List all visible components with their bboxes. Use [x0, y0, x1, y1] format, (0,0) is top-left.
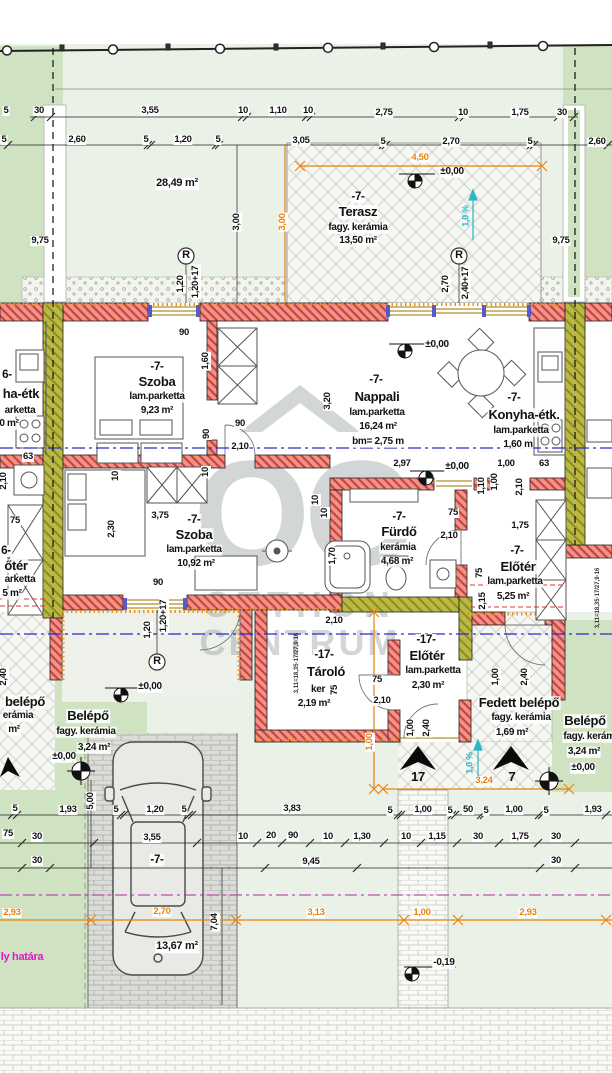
- dim-label: 2,10: [515, 477, 525, 496]
- lvl-label: ±0,00: [51, 752, 76, 763]
- unit-label: 6-: [1, 369, 13, 381]
- dim-label: 2,70: [441, 137, 460, 147]
- dim-label: 1,00: [504, 805, 523, 815]
- dim-label: 30: [31, 832, 43, 842]
- sub-label: 4,68 m²: [380, 557, 414, 568]
- dim-label: 90: [202, 428, 212, 440]
- dim-label: 75: [371, 675, 383, 685]
- dim-label: 1,15: [427, 832, 446, 842]
- dim-label: 5: [1, 135, 8, 145]
- dim-label: 1,00: [365, 732, 375, 751]
- dim-label: 1,20: [145, 805, 164, 815]
- sub-label: arketta: [4, 575, 37, 586]
- dim-label: 10: [201, 466, 211, 478]
- dim-label: 3,13: [306, 908, 325, 918]
- area-label: 13,67 m²: [155, 941, 199, 953]
- dim-label: 1,30: [352, 832, 371, 842]
- dim-label: 75: [9, 516, 21, 526]
- dim-label: 3,55: [140, 106, 159, 116]
- dim-label: 9,75: [30, 236, 49, 246]
- dim-label: 10: [457, 108, 469, 118]
- unit-label: -7-: [149, 854, 164, 866]
- dim-label: 1,20: [173, 135, 192, 145]
- arrw-label: 17: [410, 770, 426, 784]
- sub-label: lam.parketta: [128, 392, 185, 403]
- sub-label: 3,24 m²: [567, 747, 601, 758]
- sub-label: 2,30 m²: [411, 681, 445, 692]
- sub-label: lam.parketta: [486, 577, 543, 588]
- sub-label: 3,24 m²: [77, 743, 111, 754]
- mag-label: ly határa: [0, 952, 44, 964]
- dim-label: 75: [2, 829, 14, 839]
- lvl-label: ±0,00: [439, 167, 464, 178]
- room-label: Terasz: [338, 205, 378, 219]
- dim-label: 50: [462, 805, 474, 815]
- dim-label: 1,93: [58, 805, 77, 815]
- room-label: Előtér: [408, 649, 445, 663]
- dim-label: 10: [111, 470, 121, 482]
- room-label: ha-étk: [2, 387, 41, 401]
- dim-label: 2,93: [518, 908, 537, 918]
- dim-label: 2,40: [520, 667, 530, 686]
- dim-label: 5,00: [86, 791, 96, 810]
- dim-label: 2,10: [439, 531, 458, 541]
- lvl-label: ±0,00: [570, 763, 595, 774]
- dim-label: 5: [3, 106, 10, 116]
- sub-label: 10,92 m²: [176, 559, 216, 570]
- dim-label: 5: [215, 135, 222, 145]
- dim-label: 1,00: [496, 459, 515, 469]
- sub-label: 16,24 m²: [358, 422, 398, 433]
- dim-label: 3,75: [150, 511, 169, 521]
- unit-label: -7-: [368, 374, 383, 386]
- room-label: Tároló: [306, 665, 346, 679]
- dim-label: 2,40: [422, 718, 432, 737]
- dim-label: 1,10: [268, 106, 287, 116]
- lvl-label: -0,19: [432, 958, 455, 969]
- dim-label: 2,75: [374, 108, 393, 118]
- dim-label: 3,83: [282, 804, 301, 814]
- dim-label: 2,10: [230, 442, 249, 452]
- sub-label: 5,25 m²: [496, 592, 530, 603]
- room-label: Szoba: [138, 375, 177, 389]
- dim-label: 2,93: [2, 908, 21, 918]
- dim-label: 2,10: [372, 696, 391, 706]
- dim-label: 2,70: [152, 907, 171, 917]
- sub-label: arketta: [4, 406, 37, 417]
- tiny-label: 3,11=18,35·17/27,9·16: [595, 567, 601, 630]
- dim-label: 1,00: [490, 472, 500, 491]
- unit-label: -17-: [415, 634, 436, 646]
- dim-label: 1,20+17: [191, 265, 201, 300]
- dim-label: 1,75: [510, 521, 529, 531]
- dim-label: 1,00: [412, 908, 431, 918]
- dim-label: 3,20: [323, 391, 333, 410]
- sub-label: 0 m²: [0, 419, 20, 430]
- room-label: Fürdő: [380, 525, 417, 539]
- dim-label: 2,40+17: [461, 266, 471, 301]
- dim-label: 4,50: [410, 153, 429, 163]
- unit-label: -7-: [350, 191, 365, 203]
- room-label: Fedett belépő: [478, 696, 561, 710]
- sub-label: fagy. kerámia: [490, 713, 551, 724]
- dim-label: 30: [472, 832, 484, 842]
- room-label: Előtér: [499, 560, 536, 574]
- sub-label: 5 m²: [1, 589, 22, 600]
- dim-label: 1,93: [583, 805, 602, 815]
- dim-label: 10: [302, 106, 314, 116]
- dim-label: 5: [483, 806, 490, 816]
- sub-label: lam.parketta: [492, 426, 549, 437]
- dim-label: 3,05: [291, 136, 310, 146]
- dim-label: 30: [550, 832, 562, 842]
- dim-label: 20: [265, 831, 277, 841]
- dim-label: 5: [143, 135, 150, 145]
- dim-label: 2,40: [0, 667, 9, 686]
- cyan-label: 1,0 %: [465, 751, 474, 775]
- sub-label: 1,69 m²: [495, 728, 529, 739]
- unit-label: 6-: [0, 545, 12, 557]
- dim-label: 75: [330, 684, 340, 696]
- dim-label: 2,15: [478, 591, 488, 610]
- dim-label: 3,00: [232, 212, 242, 231]
- room-label: Belépő: [66, 709, 110, 723]
- room-label: Belépő: [563, 714, 607, 728]
- cyan-label: 1,0 %: [461, 204, 470, 228]
- sub-label: bm= 2,75 m: [351, 437, 405, 448]
- dim-label: 30: [556, 108, 568, 118]
- unit-label: -7-: [186, 514, 201, 526]
- dim-label: 5: [543, 806, 550, 816]
- dim-label: 5: [387, 806, 394, 816]
- dim-label: 1,00: [413, 805, 432, 815]
- dim-label: 63: [538, 459, 550, 469]
- dim-label: 10: [400, 832, 412, 842]
- dim-label: 1,20+17: [159, 599, 169, 634]
- sub-label: fagy. kerámia: [327, 223, 388, 234]
- dim-label: 10: [237, 106, 249, 116]
- unit-label: -17-: [313, 649, 334, 661]
- dim-label: 5: [527, 137, 534, 147]
- sub-label: 2,19 m²: [297, 699, 331, 710]
- unit-label: -7-: [391, 511, 406, 523]
- room-label: Konyha-étk.: [487, 408, 560, 422]
- room-label: belépő: [4, 695, 46, 709]
- sub-label: lam.parketta: [165, 545, 222, 556]
- area-label: 28,49 m²: [155, 178, 199, 190]
- dim-label: 63: [22, 452, 34, 462]
- sub-label: m²: [7, 725, 21, 736]
- sub-label: lam.parketta: [348, 408, 405, 419]
- dim-label: 2,30: [107, 519, 117, 538]
- sub-label: ker: [310, 685, 326, 696]
- dim-label: 90: [178, 328, 190, 338]
- dim-label: 3,55: [142, 833, 161, 843]
- dim-label: 5: [380, 137, 387, 147]
- sub-label: kerámia: [379, 543, 417, 554]
- dim-label: 1,70: [328, 546, 338, 565]
- lvl-label: ±0,00: [424, 340, 449, 351]
- sub-label: 1,60 m: [502, 440, 533, 451]
- dim-label: 1,20: [176, 274, 186, 293]
- dim-label: 1,75: [510, 832, 529, 842]
- sub-label: 13,50 m²: [338, 236, 378, 247]
- dim-label: 90: [287, 831, 299, 841]
- room-label: Szoba: [175, 528, 214, 542]
- dim-label: 5: [113, 805, 120, 815]
- dim-label: 1,00: [406, 718, 416, 737]
- dim-label: 2,60: [587, 137, 606, 147]
- dim-label: 5: [181, 805, 188, 815]
- dim-label: 30: [31, 856, 43, 866]
- dim-label: 1,10: [477, 476, 487, 495]
- dim-label: 2,60: [67, 135, 86, 145]
- dim-label: 10: [237, 832, 249, 842]
- dim-label: 2,10: [0, 471, 9, 490]
- rsym-label: R: [454, 250, 464, 262]
- sub-label: fagy. kerámia: [562, 732, 612, 743]
- dim-label: 1,75: [510, 108, 529, 118]
- rsym-label: R: [152, 656, 162, 668]
- sub-label: fagy. kerámia: [55, 727, 116, 738]
- dim-label: 30: [33, 106, 45, 116]
- dim-label: 7,04: [210, 912, 220, 931]
- dim-label: 2,97: [392, 459, 411, 469]
- dim-label: 10: [311, 494, 321, 506]
- dim-label: 30: [550, 856, 562, 866]
- unit-label: -7-: [149, 361, 164, 373]
- dim-label: 10: [320, 507, 330, 519]
- dim-label: 90: [152, 578, 164, 588]
- dim-label: 90: [234, 419, 246, 429]
- dim-label: 1,60: [201, 351, 211, 370]
- dim-label: 1,20: [143, 620, 153, 639]
- dim-label: 9,75: [551, 236, 570, 246]
- lvl-label: ±0,00: [137, 682, 162, 693]
- dim-label: 1,00: [491, 667, 501, 686]
- rsym-label: R: [181, 250, 191, 262]
- floor-plan-canvas: OC OTTHON CENTRUM: [0, 0, 612, 1073]
- tiny-label: 3,11=18,35·17/27,9·16: [294, 632, 300, 695]
- dim-label: 3,24: [474, 776, 493, 786]
- dim-label: 75: [447, 508, 459, 518]
- arrw-label: 7: [508, 770, 517, 784]
- dim-label: 3,00: [278, 212, 288, 231]
- dim-label: 75: [475, 567, 485, 579]
- lvl-label: ±0,00: [444, 462, 469, 473]
- room-label: Nappali: [354, 390, 401, 404]
- room-label: őtér: [3, 559, 28, 573]
- sub-label: erámia: [2, 711, 34, 722]
- sub-label: 9,23 m²: [140, 406, 174, 417]
- dim-label: 5: [447, 806, 454, 816]
- dim-label: 10: [322, 832, 334, 842]
- dim-label: 5: [12, 804, 19, 814]
- dim-label: 2,70: [441, 274, 451, 293]
- plan-labels: 5303,55101,10102,75101,753052,6051,2053,…: [0, 0, 612, 1073]
- dim-label: 9,45: [301, 857, 320, 867]
- unit-label: -7-: [509, 545, 524, 557]
- unit-label: -7-: [506, 392, 521, 404]
- dim-label: 2,10: [324, 616, 343, 626]
- sub-label: lam.parketta: [404, 666, 461, 677]
